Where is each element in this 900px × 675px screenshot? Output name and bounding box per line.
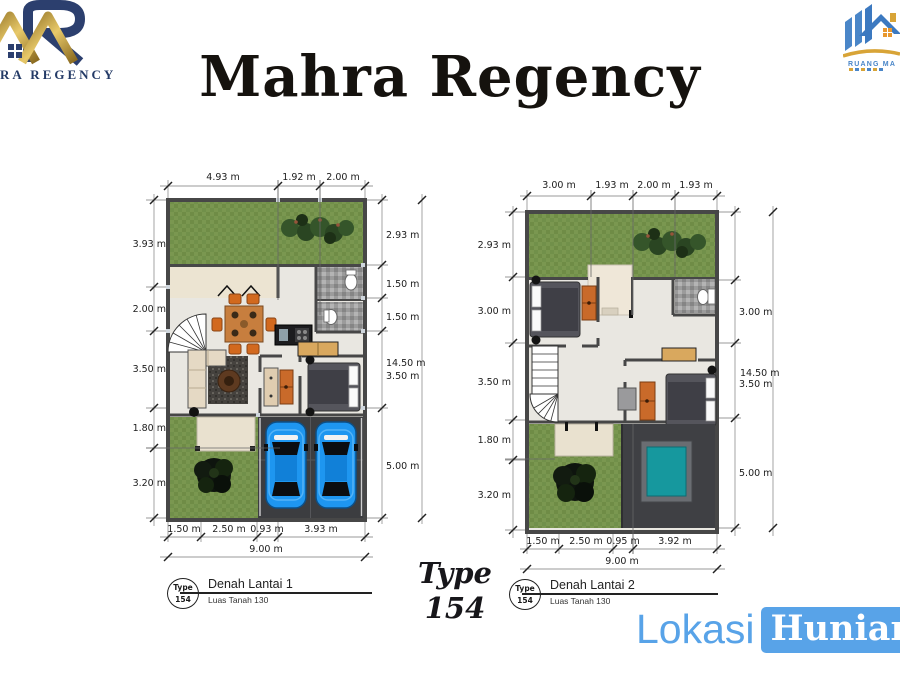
svg-text:1.50 m: 1.50 m <box>167 524 200 535</box>
plan1-caption: Type 154 Denah Lantai 1 Luas Tanah 130 <box>164 578 376 612</box>
svg-text:14.50 m: 14.50 m <box>740 368 779 379</box>
svg-text:3.20 m: 3.20 m <box>133 478 166 489</box>
logo-right-subtext-decor <box>849 68 883 71</box>
page-title: Mahra Regency <box>0 44 900 110</box>
bed <box>530 282 580 337</box>
svg-text:1.50 m: 1.50 m <box>526 536 559 547</box>
svg-text:9.00 m: 9.00 m <box>605 556 638 567</box>
toilet-icon <box>345 274 357 290</box>
svg-text:3.00 m: 3.00 m <box>739 307 772 318</box>
svg-text:3.00 m: 3.00 m <box>478 306 511 317</box>
plan1-title: Denah Lantai 1 <box>208 577 293 591</box>
svg-text:3.93 m: 3.93 m <box>133 239 166 250</box>
svg-text:2.93 m: 2.93 m <box>386 230 419 241</box>
type-badge: Type 154 <box>509 579 541 610</box>
svg-text:2.50 m: 2.50 m <box>569 536 602 547</box>
floor-plan-2: 3.00 m 1.93 m 2.00 m 1.93 m 2.93 m 3.00 … <box>470 170 800 590</box>
house-icon <box>843 4 900 56</box>
plan2-subtitle: Luas Tanah 130 <box>550 596 610 606</box>
roof-deck <box>622 424 715 528</box>
house-lantai-1 <box>166 198 365 520</box>
nightstand <box>532 276 541 285</box>
svg-text:4.93 m: 4.93 m <box>206 172 239 183</box>
svg-text:2.00 m: 2.00 m <box>637 180 670 191</box>
toilet-icon <box>698 290 709 305</box>
svg-text:3.92 m: 3.92 m <box>658 536 691 547</box>
plan1-subtitle: Luas Tanah 130 <box>208 595 268 605</box>
svg-text:5.00 m: 5.00 m <box>739 468 772 479</box>
svg-text:3.20 m: 3.20 m <box>478 490 511 501</box>
svg-text:0.93 m: 0.93 m <box>250 524 283 535</box>
house-lantai-2 <box>527 212 717 532</box>
ruang-logo: RUANG MA <box>843 4 900 74</box>
caption-rule <box>522 593 718 595</box>
type-badge-number: 154 <box>517 595 533 606</box>
nightstand <box>306 408 315 417</box>
bed <box>308 363 360 411</box>
skylight <box>647 447 686 496</box>
svg-text:2.00 m: 2.00 m <box>133 304 166 315</box>
svg-text:3.50 m: 3.50 m <box>478 377 511 388</box>
type-154-label: Type 154 <box>403 556 507 626</box>
type-word: Type <box>403 556 507 591</box>
svg-text:3.50 m: 3.50 m <box>133 364 166 375</box>
carport <box>258 417 363 518</box>
svg-text:2.00 m: 2.00 m <box>326 172 359 183</box>
bathroom-2 <box>316 302 363 332</box>
svg-text:1.50 m: 1.50 m <box>386 312 419 323</box>
caption-rule <box>180 592 372 594</box>
cabinet <box>264 368 278 406</box>
terrace <box>170 265 278 298</box>
type-number: 154 <box>403 591 507 626</box>
svg-text:0.95 m: 0.95 m <box>606 536 639 547</box>
back-terrace <box>555 424 613 456</box>
svg-text:9.00 m: 9.00 m <box>249 544 282 555</box>
svg-text:3.50 m: 3.50 m <box>739 379 772 390</box>
svg-text:14.50 m: 14.50 m <box>386 358 425 369</box>
lokasihunian-watermark: Lokasi Hunian <box>636 606 900 653</box>
svg-text:1.80 m: 1.80 m <box>133 423 166 434</box>
svg-text:1.92 m: 1.92 m <box>282 172 315 183</box>
watermark-hunian: Hunian <box>761 607 900 653</box>
svg-text:3.00 m: 3.00 m <box>542 180 575 191</box>
brochure-page: RA REGENCY Mahra Regency RUANG MA <box>0 0 900 675</box>
svg-text:1.50 m: 1.50 m <box>386 279 419 290</box>
floor-plan-1: 4.93 m 1.92 m 2.00 m 3.93 m 2.00 m 3.50 … <box>130 160 440 570</box>
watermark-lokasi: Lokasi <box>636 606 755 653</box>
svg-text:5.00 m: 5.00 m <box>386 461 419 472</box>
logo-right-text: RUANG MA <box>848 61 896 68</box>
bed <box>666 374 716 426</box>
svg-text:1.80 m: 1.80 m <box>478 435 511 446</box>
svg-text:2.93 m: 2.93 m <box>478 240 511 251</box>
stair-landing <box>618 388 636 410</box>
type-badge-number: 154 <box>175 594 191 605</box>
nightstand <box>532 336 541 345</box>
type-badge-word: Type <box>515 583 535 594</box>
svg-text:3.93 m: 3.93 m <box>304 524 337 535</box>
svg-text:2.50 m: 2.50 m <box>212 524 245 535</box>
nightstand <box>708 366 717 375</box>
nightstand <box>306 356 315 365</box>
svg-text:3.50 m: 3.50 m <box>386 371 419 382</box>
wood-desk <box>662 348 696 361</box>
plant-icon <box>189 407 199 417</box>
back-terrace <box>197 417 255 451</box>
type-badge: Type 154 <box>167 578 199 609</box>
svg-text:1.93 m: 1.93 m <box>595 180 628 191</box>
plan2-title: Denah Lantai 2 <box>550 578 635 592</box>
type-badge-word: Type <box>173 582 193 593</box>
svg-text:1.93 m: 1.93 m <box>679 180 712 191</box>
